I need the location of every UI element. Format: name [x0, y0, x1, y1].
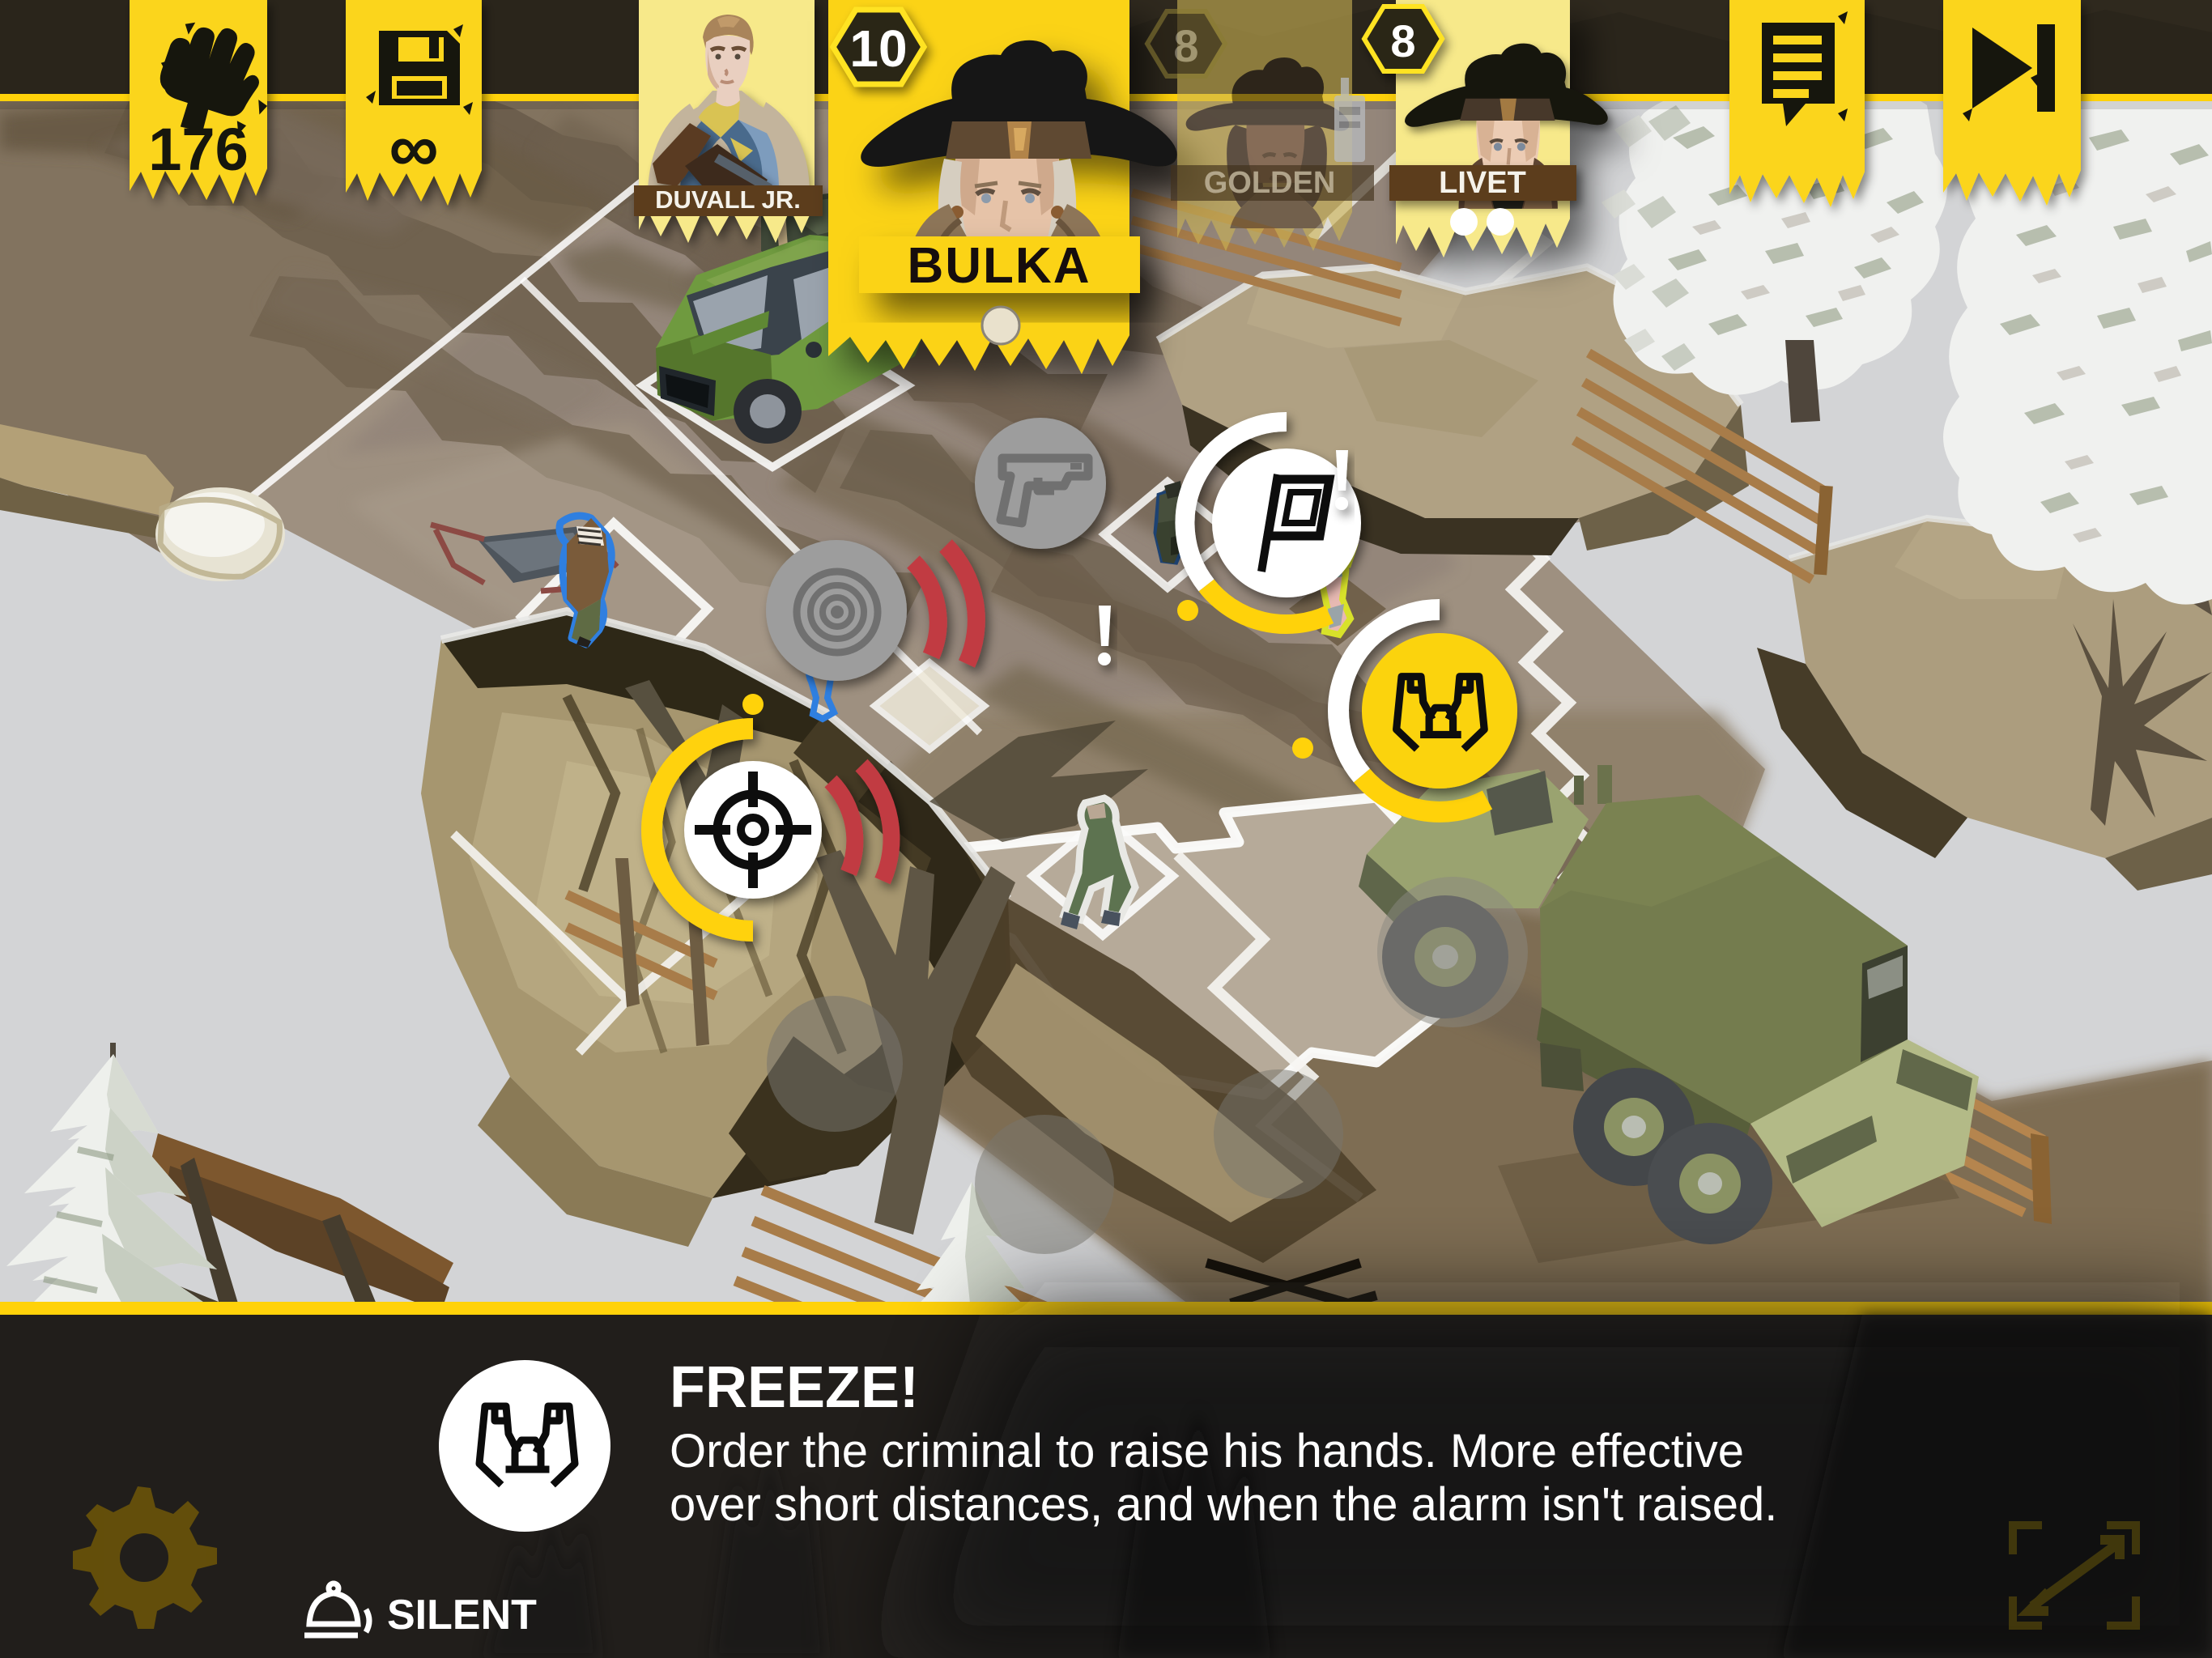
svg-text:10: 10 [849, 19, 907, 78]
svg-text:LIVET: LIVET [1439, 166, 1526, 200]
svg-text:8: 8 [1173, 20, 1198, 71]
svg-text:SILENT: SILENT [387, 1592, 537, 1639]
svg-text:∞: ∞ [389, 109, 438, 187]
svg-text:FREEZE!: FREEZE! [670, 1355, 919, 1420]
svg-text:DUVALL JR.: DUVALL JR. [655, 185, 801, 214]
svg-text:Order the criminal to raise hi: Order the criminal to raise his hands. M… [670, 1425, 1744, 1477]
svg-text:176: 176 [148, 116, 248, 183]
svg-text:GOLDEN: GOLDEN [1204, 166, 1336, 200]
svg-text:8: 8 [1390, 15, 1415, 66]
svg-text:BULKA: BULKA [908, 238, 1091, 294]
svg-text:over short distances, and when: over short distances, and when the alarm… [670, 1478, 1777, 1531]
